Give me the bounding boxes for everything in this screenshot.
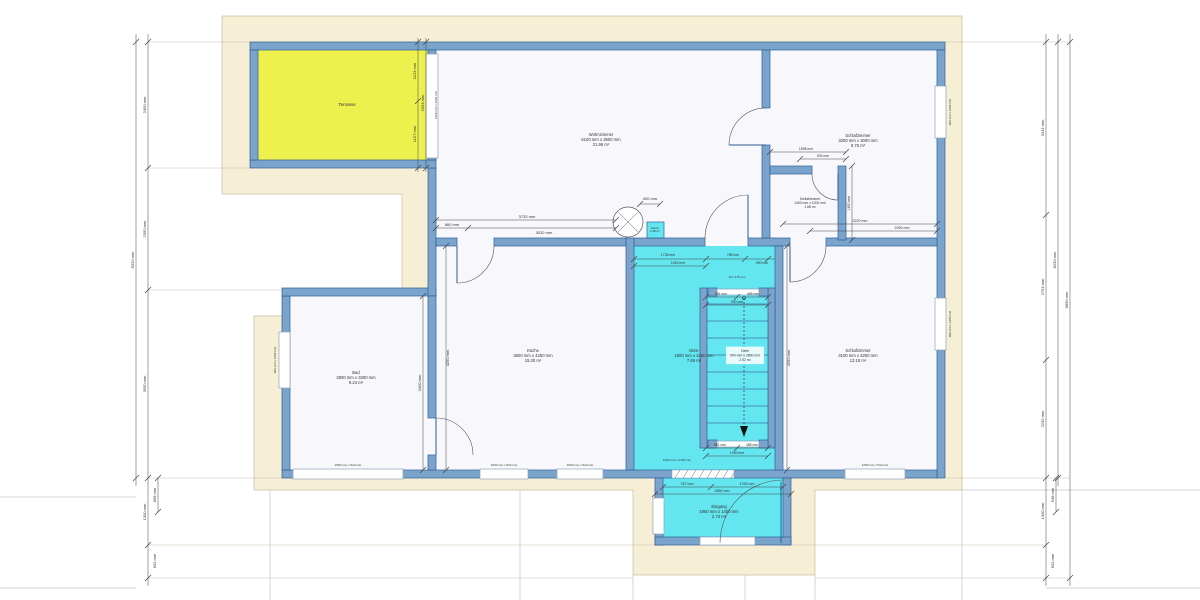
dim-label: 4250 mm [786,349,791,366]
wall [768,288,775,448]
window [935,298,946,350]
dim-label: 1250 mm x 510 mm [862,463,889,467]
wall [783,478,791,545]
floorplan-canvas: 2400 mm2350 mm3550 mm1300 mm602 mm658 mm… [0,0,1200,600]
wall [838,166,846,240]
wall [762,145,770,238]
dim-label: 900 mm x 1250 mm [948,310,952,337]
dim-label: 2400 mm [142,96,147,113]
dim-label: 1300 mm [142,503,147,520]
wall [428,455,436,470]
dim-label: 900 mm x 1250 mm [273,346,277,373]
wall [748,238,790,246]
wall [428,296,436,418]
dim-label: 930 mm [731,300,743,304]
wall [436,238,457,246]
window [557,469,603,479]
dim-label: 767 mm [681,482,694,486]
room-label-terrasse: Terrasse [338,102,356,107]
wall [250,160,436,168]
dim-label: 2350 mm x 510 mm [335,463,362,467]
dim-label: 1553 mm [671,261,685,265]
window [480,469,528,479]
dim-label: 900 mm x 1250 mm [948,98,952,125]
dim-label: 9890 mm [1064,291,1069,308]
room-label-kamin: 0.38 m² [650,229,660,233]
wall [250,42,945,50]
dim-label: 581 mm [714,443,726,447]
dim-label: 4250 mm [445,349,450,366]
window [279,332,290,388]
dim-label: 785 mm [727,253,739,257]
wall [282,288,436,296]
wall [494,238,626,246]
dim-label: 1123 mm [412,62,417,79]
wall [759,288,768,296]
wall [775,246,783,470]
floorplan-viewport: 2400 mm2350 mm3550 mm1300 mm602 mm658 mm… [0,0,1200,600]
room-label-eingang: 2.73 m² [712,514,727,519]
dim-label: 2650 mm [715,489,730,493]
dim-label: 2232 mm [1040,410,1045,427]
wall [770,166,812,174]
room-label-bad: 9.24 m² [349,380,364,385]
room-label-diele-treppe: 900 mm x 2800 mm [730,354,760,358]
wall [700,288,707,448]
dim-label: 1000 mm x 510 mm [567,463,594,467]
dim-label: 1050 mm [730,451,744,455]
window [700,537,755,545]
room-label-schlafzimmer-1: 9.75 m² [851,143,866,148]
wall [634,238,705,246]
dim-label: 488 mm [746,443,758,447]
room-label-diele-treppe: 2.52 m² [739,358,751,362]
dim-label: 602 mm [152,553,157,568]
dim-label: 2350 mm [142,220,147,237]
wall [759,440,768,448]
room-label-schlafzimmer-2: 13.18 m² [850,358,867,363]
dim-label: 1000 mm x 510 mm [491,463,518,467]
dim-label: 2390 mm [895,226,910,230]
room-label-schlafzimmer-klein: 1.68 m² [804,205,816,209]
dim-label: 2754 mm [1040,278,1045,295]
dim-label: 3400 mm [417,374,422,391]
dim-label: 3732 mm [519,214,536,219]
dim-label: 8230 mm [1052,251,1057,268]
window [845,469,905,479]
dim-label: 3550 mm [142,375,147,392]
dim-label: 488 mm [747,292,759,296]
wall [428,168,436,296]
dim-label: 1763 mm [740,482,755,486]
wall [626,238,634,470]
room-label-diele: 7.65 m² [687,358,702,363]
room-label-kueche: 15.30 m² [525,358,542,363]
dim-label: 658 mm [152,487,157,502]
dim-label: 648 mm [1050,487,1055,502]
dim-label: 2260 mm x 2260 mm [434,90,438,119]
dim-label: 1830 mm [847,196,851,210]
dim-label: 1598 mm [799,147,813,151]
dim-label: 933 mm [817,154,829,158]
dim-label: 3220 mm [853,219,868,223]
dim-label: 602 mm [1050,553,1055,568]
window [653,498,664,534]
dim-label: 1735 mm [661,253,675,257]
window [935,86,946,138]
dim-label: 1300 mm [1040,502,1045,519]
dim-label: 3032 mm [536,230,553,235]
dim-label: 481 mm [715,292,727,296]
wall [762,50,770,108]
dim-label: 860 mm [445,222,460,227]
dim-label: 3341 mm [1040,119,1045,136]
window [293,469,403,479]
dim-label: 1127 mm [412,125,417,142]
dim-label: 590 mm [756,261,768,265]
dim-label: 1000 mm x 2125 mm [663,458,692,462]
room-label-wohnzimmer: 21.96 m² [593,142,610,147]
wall [250,50,258,160]
room-label-diele-treppe: Diele [741,349,749,353]
dim-label: 400 mm [643,196,658,201]
dim-label: 2394 mm [420,94,425,111]
dim-label: 8320 mm [130,251,135,268]
dim-label: 16 x 175 mm [728,275,746,279]
